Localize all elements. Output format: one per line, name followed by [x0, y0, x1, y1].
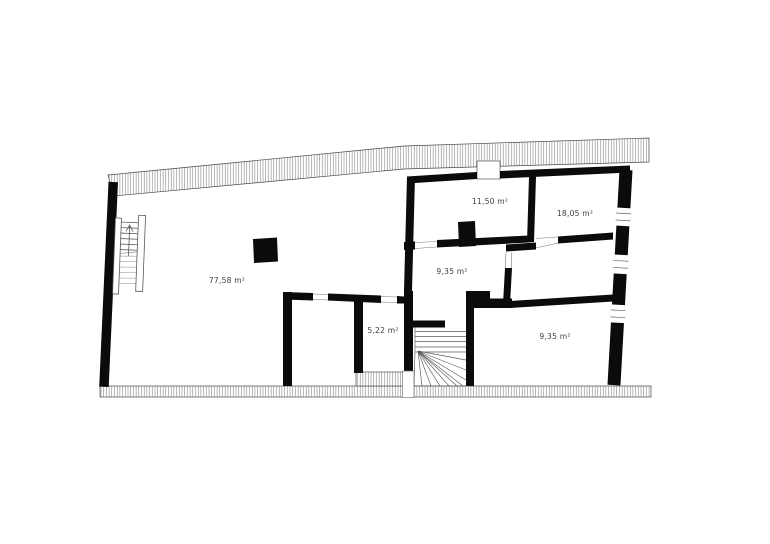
- wall-lowerroom-left: [283, 292, 292, 386]
- room-label-11-50: 11,50 m²: [472, 197, 508, 206]
- floor-plan-page: 77,58 m² 11,50 m² 18,05 m² 9,35 m² 5,22 …: [0, 0, 770, 544]
- right-wall-window-1: [615, 208, 631, 227]
- room-label-5-22: 5,22 m²: [367, 326, 398, 335]
- roof-notch-opening: [477, 161, 500, 179]
- chimney-main: [253, 238, 278, 264]
- chimney-1150: [458, 221, 476, 247]
- room-label-9-35-bottom: 9,35 m²: [539, 332, 570, 341]
- bottom-exterior-band: [100, 386, 651, 397]
- bottom-hatched-block: [356, 372, 403, 386]
- wall-522-right: [404, 291, 413, 375]
- right-wall-window-2: [613, 254, 629, 274]
- wall-lowerroom-522-divider: [354, 297, 363, 374]
- floor-plan-svg: 77,58 m² 11,50 m² 18,05 m² 9,35 m² 5,22 …: [0, 0, 770, 544]
- room-label-77-58: 77,58 m²: [209, 276, 245, 285]
- stair-exit-opening: [403, 371, 415, 398]
- room-label-18-05: 18,05 m²: [557, 209, 593, 218]
- room-label-9-35-middle: 9,35 m²: [436, 267, 467, 276]
- right-wall-window-3: [610, 304, 626, 323]
- stair-top-wall: [413, 321, 445, 328]
- wall-lower-top-c: [397, 296, 404, 304]
- stair-right-wall: [466, 291, 474, 386]
